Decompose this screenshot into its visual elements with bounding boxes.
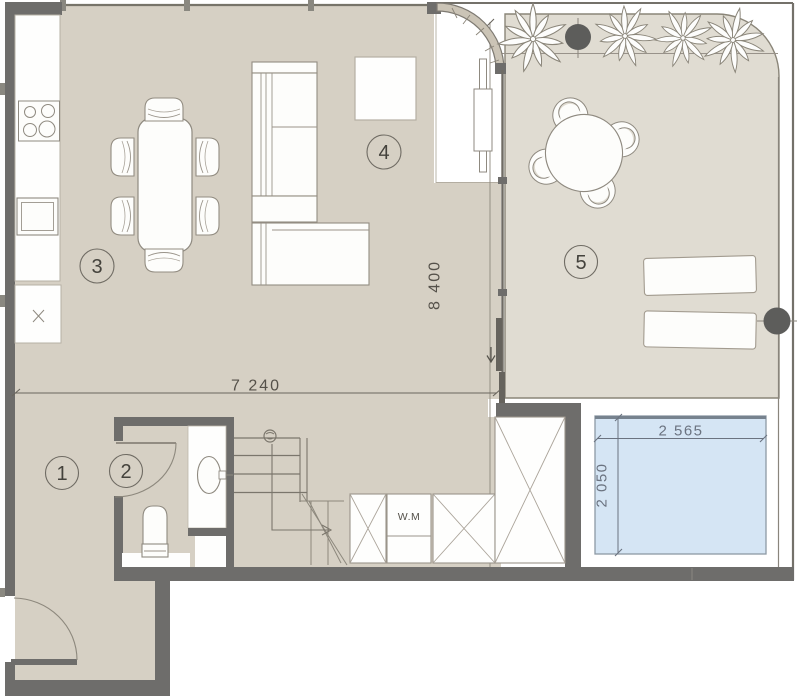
svg-text:2 565: 2 565: [658, 423, 703, 440]
svg-text:2 050: 2 050: [594, 462, 611, 507]
svg-text:1: 1: [56, 463, 67, 485]
svg-text:5: 5: [575, 252, 586, 274]
svg-text:W.M: W.M: [398, 511, 421, 523]
svg-text:7 240: 7 240: [231, 378, 281, 395]
svg-text:8 400: 8 400: [427, 260, 444, 310]
svg-text:4: 4: [378, 142, 389, 164]
svg-text:3: 3: [91, 256, 102, 278]
svg-text:2: 2: [120, 461, 131, 483]
